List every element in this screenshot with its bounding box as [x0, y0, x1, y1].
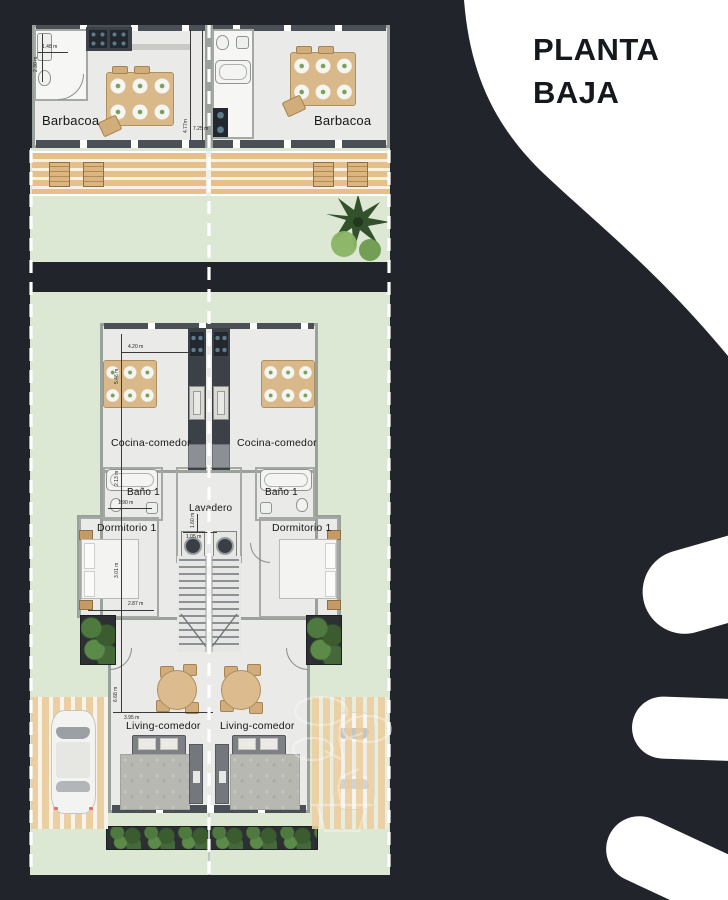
stove-icon	[190, 332, 204, 356]
dimension-line	[113, 712, 213, 713]
dining-table	[103, 360, 157, 408]
page-title: PLANTA BAJA	[533, 28, 659, 114]
dimension-line	[42, 34, 43, 82]
dimension-line	[202, 30, 203, 140]
washbasin	[236, 36, 249, 49]
dimension-label: 1.05 m	[186, 534, 201, 540]
chair	[134, 66, 150, 74]
sink	[213, 386, 229, 420]
washbasin	[260, 502, 272, 514]
lounge-chair	[83, 162, 104, 187]
stove-icon	[213, 108, 228, 137]
room-label-dormitorio: Dormitorio 1	[272, 522, 332, 534]
dimension-label: 3.01 m	[114, 563, 120, 578]
dimension-line	[197, 514, 198, 532]
dimension-label: 4.77m	[183, 119, 189, 133]
chair	[296, 46, 312, 54]
dimension-line	[190, 30, 191, 140]
car-taillight	[54, 807, 58, 810]
tv-unit	[215, 744, 229, 804]
site-plan: 1.48 m 2.30 m 4.77m 7.25 m Barbacoa Barb…	[0, 0, 728, 900]
chair	[318, 46, 334, 54]
dimension-label: 1.60 m	[190, 513, 196, 528]
car-roof	[56, 742, 90, 778]
dimension-label: 1.90 m	[118, 500, 133, 506]
shrub-planter	[306, 615, 342, 665]
room-label-living: Living-comedor	[126, 720, 201, 732]
cushion	[260, 738, 278, 750]
round-table	[221, 670, 261, 710]
room-label-barbacoa: Barbacoa	[42, 113, 99, 128]
yard-divider-line	[208, 813, 210, 875]
dimension-line	[88, 610, 154, 611]
dimension-label: 4.20 m	[128, 344, 143, 350]
lounge-chair	[347, 162, 368, 187]
bathtub	[215, 60, 251, 84]
dining-table	[261, 360, 315, 408]
toilet	[216, 35, 229, 50]
dimension-line	[121, 352, 189, 353]
dimension-label: 2.87 m	[128, 601, 143, 607]
counter-extension	[132, 44, 190, 50]
dimension-label: 2.30 m	[33, 57, 39, 72]
nightstand	[327, 600, 341, 610]
sink	[189, 386, 205, 420]
chair	[112, 66, 128, 74]
stairs-icon	[177, 556, 241, 652]
dimension-label: 6.68 m	[113, 687, 119, 702]
nightstand	[79, 600, 93, 610]
room-label-barbacoa: Barbacoa	[314, 113, 371, 128]
room-label-cocina: Cocina-comedor	[111, 437, 191, 449]
dimension-line	[183, 532, 217, 533]
room-label-bano: Baño 1	[127, 487, 160, 498]
rug	[120, 754, 190, 810]
lounge-chair	[313, 162, 334, 187]
deck-divider	[206, 151, 211, 196]
room-label-cocina: Cocina-comedor	[237, 437, 317, 449]
pillow	[325, 543, 336, 569]
washing-machine	[213, 531, 237, 558]
toilet	[38, 70, 51, 86]
pillow	[84, 543, 95, 569]
dimension-label: 1.48 m	[42, 44, 57, 50]
stove-icon	[214, 332, 228, 356]
room-label-dormitorio: Dormitorio 1	[97, 522, 157, 534]
dimension-line	[108, 508, 152, 509]
room-label-bano: Baño 1	[265, 487, 298, 498]
stove-icon	[110, 30, 128, 48]
car-rear-window	[56, 781, 90, 792]
dimension-label: 7.25 m	[193, 126, 208, 132]
title-line-2: BAJA	[533, 71, 659, 114]
pillow	[84, 571, 95, 597]
stove-icon	[89, 30, 107, 48]
lounge-chair	[49, 162, 70, 187]
car-top-icon	[51, 710, 96, 814]
round-table	[157, 670, 197, 710]
room-label-lavadero: Lavadero	[189, 503, 232, 514]
tv-unit	[189, 744, 203, 804]
window-strip	[104, 323, 314, 329]
cushion	[160, 738, 178, 750]
car-windshield	[56, 727, 90, 739]
bonsai-watermark-icon	[283, 685, 401, 837]
room-label-living: Living-comedor	[220, 720, 295, 732]
pillow	[325, 571, 336, 597]
toilet	[296, 498, 308, 512]
fridge	[212, 444, 230, 468]
palm-tree-icon	[322, 192, 394, 264]
title-line-1: PLANTA	[533, 28, 659, 71]
car-taillight	[89, 807, 93, 810]
cushion	[138, 738, 156, 750]
dimension-label: 5.46 m	[114, 369, 120, 384]
cushion	[238, 738, 256, 750]
dimension-label: 2.13 m	[114, 471, 120, 486]
page: PLANTA BAJA	[0, 0, 728, 900]
